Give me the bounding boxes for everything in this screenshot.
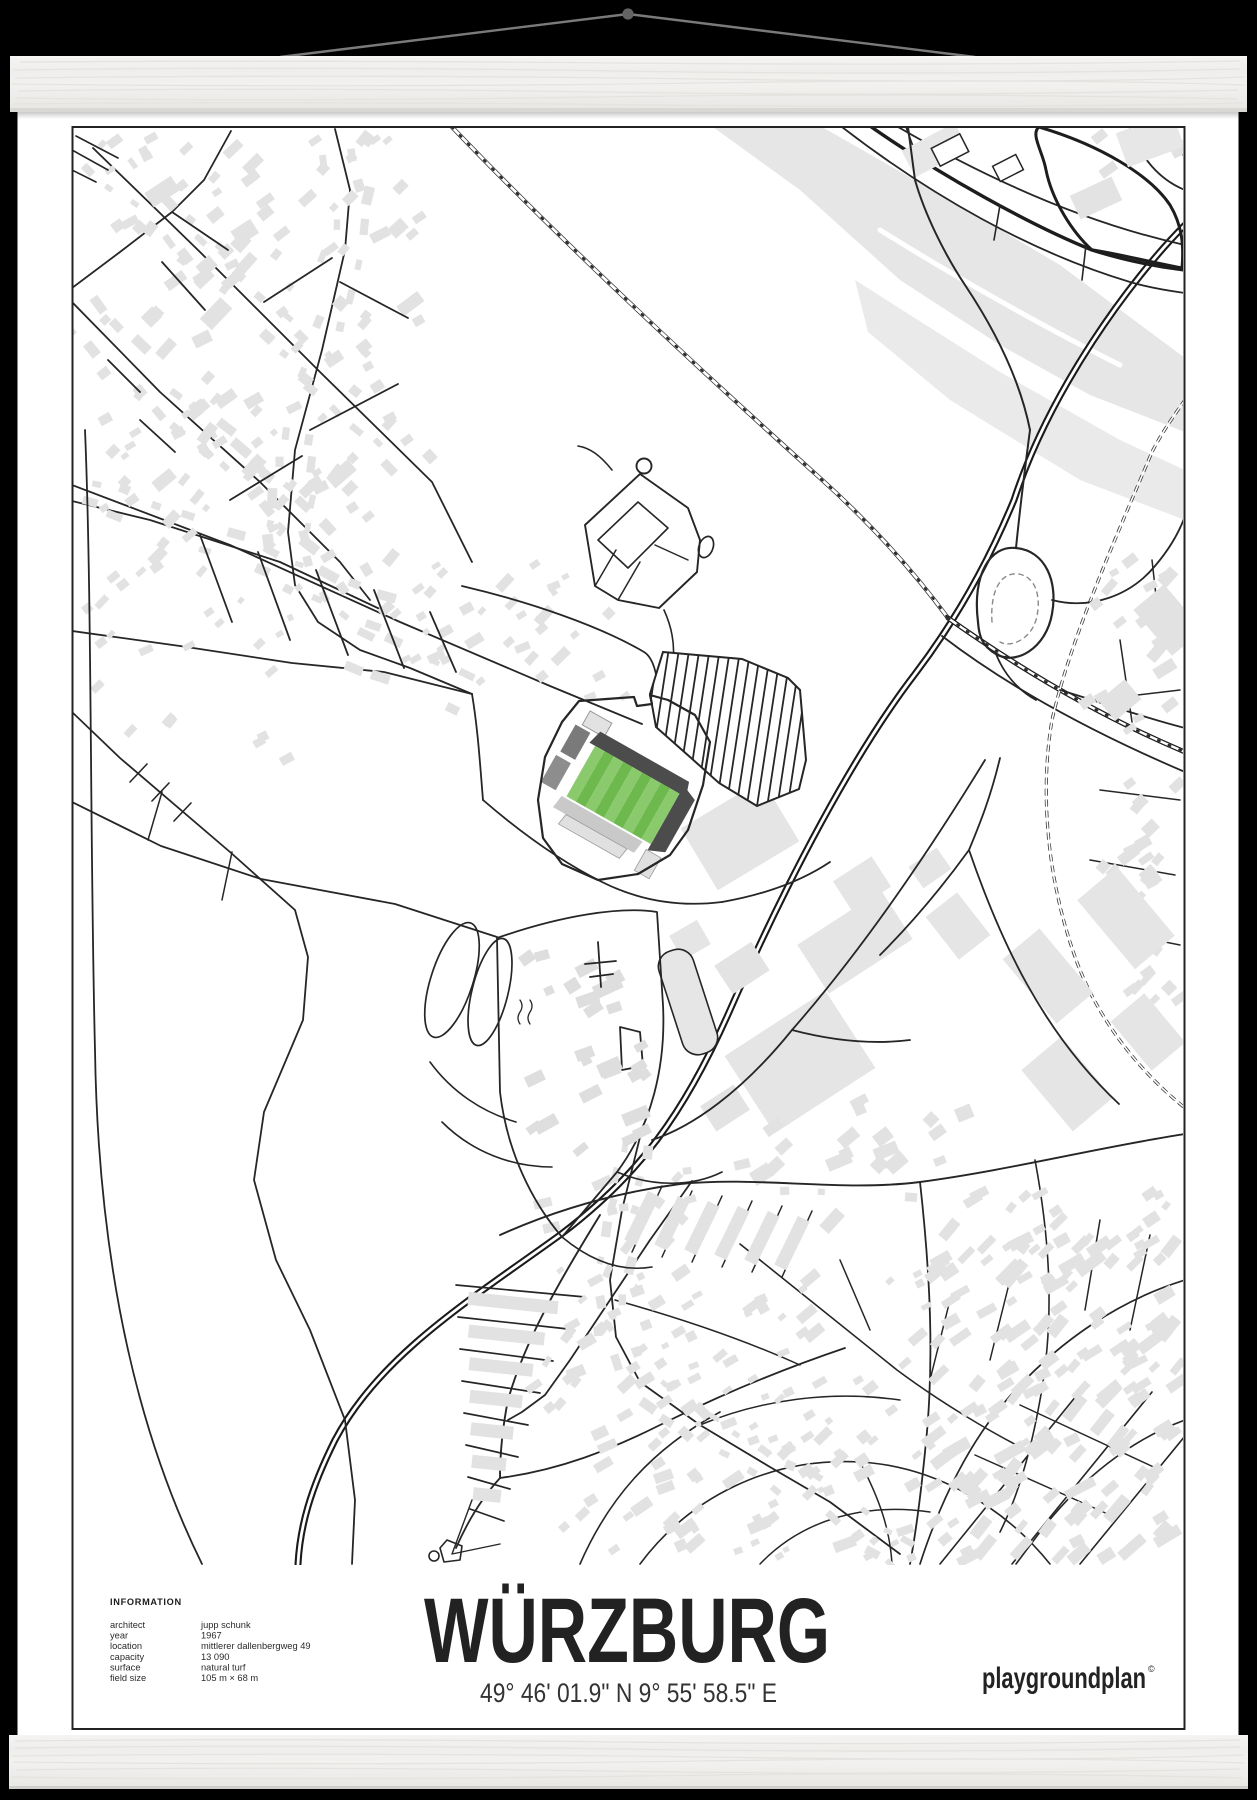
svg-text:INFORMATION: INFORMATION [110, 1597, 182, 1607]
svg-text:year: year [110, 1631, 128, 1641]
svg-text:natural turf: natural turf [201, 1662, 246, 1672]
svg-text:1967: 1967 [201, 1631, 222, 1641]
svg-text:playgroundplan: playgroundplan [982, 1662, 1146, 1695]
svg-text:©: © [1148, 1664, 1155, 1674]
svg-text:49° 46' 01.9" N 9° 55' 58.5" E: 49° 46' 01.9" N 9° 55' 58.5" E [480, 1678, 777, 1708]
svg-text:field size: field size [110, 1673, 146, 1683]
svg-text:architect: architect [110, 1620, 146, 1630]
svg-text:105 m × 68 m: 105 m × 68 m [201, 1673, 258, 1683]
svg-text:WÜRZBURG: WÜRZBURG [424, 1580, 830, 1682]
svg-text:13 090: 13 090 [201, 1652, 229, 1662]
svg-text:location: location [110, 1641, 142, 1651]
svg-text:capacity: capacity [110, 1652, 144, 1662]
svg-text:mittlerer dallenbergweg 49: mittlerer dallenbergweg 49 [201, 1641, 311, 1651]
svg-text:surface: surface [110, 1662, 141, 1672]
svg-text:jupp schunk: jupp schunk [200, 1620, 251, 1630]
